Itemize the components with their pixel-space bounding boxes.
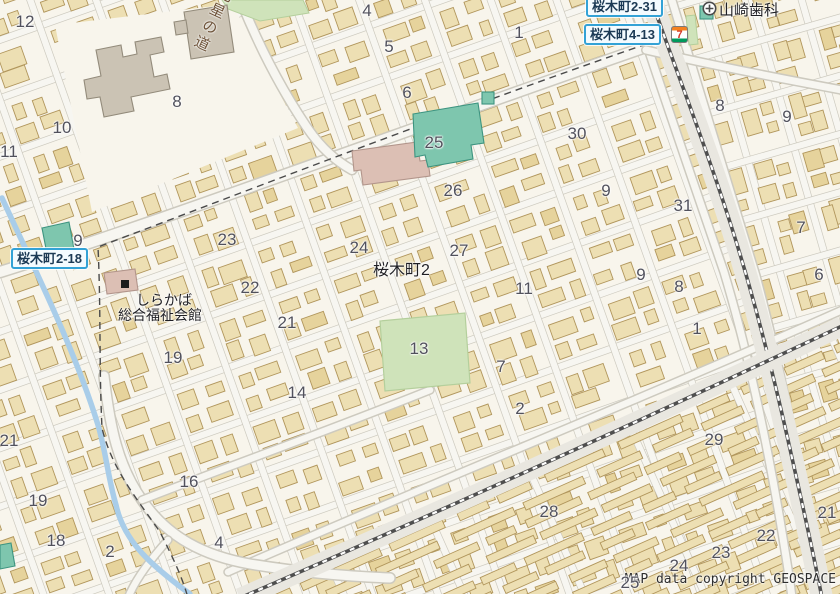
block-number: 30 [568,124,587,144]
block-number: 8 [172,92,181,112]
block-number: 16 [180,472,199,492]
block-number: 22 [241,278,260,298]
block-number: 8 [674,277,683,297]
block-number: 11 [515,279,533,299]
block-number: 10 [53,118,72,138]
block-number: 27 [450,241,469,261]
welfare-center-label-line1: しらかば [136,293,202,308]
block-number: 9 [601,181,610,201]
copyright-notice: MAP data copyright GEOSPACE [625,572,836,587]
block-number: 21 [278,313,297,333]
block-number: 19 [164,348,183,368]
welfare-center-label-line2: 総合福祉会館 [118,308,202,323]
block-number: 24 [350,238,369,258]
path-name-label: 北星の道 [188,0,237,56]
block-number: 19 [29,491,48,511]
block-number: 1 [692,319,701,339]
hospital-cross-icon [702,1,717,16]
block-number: 9 [782,107,791,127]
block-number: 6 [402,83,411,103]
block-number: 28 [540,502,559,522]
block-number: 1 [514,23,523,43]
block-number: 22 [757,526,776,546]
block-number: 31 [674,196,693,216]
map-labels-layer: 桜木町2 しらかば 総合福祉会館 山崎歯科 北星の道 MAP data copy… [0,0,840,594]
address-label[interactable]: 桜木町4-13 [584,24,661,45]
block-number: 23 [712,543,731,563]
block-number: 21 [0,431,18,451]
block-number: 18 [47,531,66,551]
block-number: 4 [214,533,223,553]
block-number: 2 [105,542,114,562]
block-number: 24 [670,556,689,576]
welfare-center-label: しらかば 総合福祉会館 [118,293,202,323]
seven-eleven-icon[interactable]: 7 [671,26,688,43]
address-label[interactable]: 桜木町2-31 [586,0,663,17]
block-number: 11 [0,142,18,162]
block-number: 13 [410,339,429,359]
block-number: 9 [636,265,645,285]
block-number: 2 [515,399,524,419]
block-number: 4 [362,1,371,21]
district-label: 桜木町2 [373,256,430,280]
block-number: 12 [16,12,35,32]
block-number: 25 [621,573,640,593]
block-number: 25 [425,133,444,153]
block-number: 29 [705,430,724,450]
block-number: 8 [715,96,724,116]
block-number: 14 [288,383,307,403]
block-number: 26 [444,181,463,201]
map-viewport[interactable]: 桜木町2 しらかば 総合福祉会館 山崎歯科 北星の道 MAP data copy… [0,0,840,594]
block-number: 7 [496,357,505,377]
dental-clinic-label: 山崎歯科 [719,0,779,20]
block-number: 21 [818,503,837,523]
block-number: 6 [814,265,823,285]
block-number: 5 [384,37,393,57]
block-number: 23 [218,230,237,250]
block-number: 7 [796,218,805,238]
address-label[interactable]: 桜木町2-18 [11,248,88,269]
public-building-marker-icon [121,280,129,288]
